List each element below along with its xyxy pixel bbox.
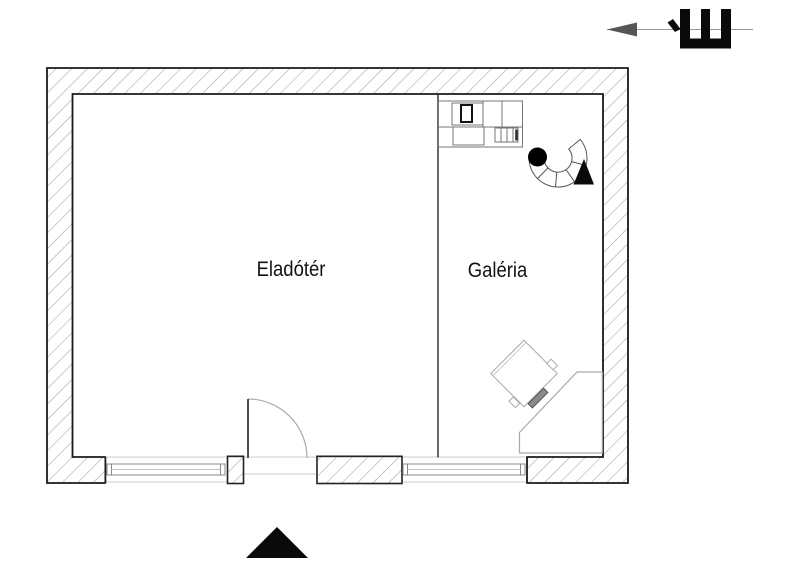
wall-pier-right [317,456,402,483]
north-letter-e-acute [668,9,732,49]
north-indicator [607,9,753,49]
counter-unit [439,101,523,147]
floor-plan-page: Eladótér Galéria [0,0,800,565]
window-right [403,464,525,475]
spiral-stair [528,139,594,187]
entrance-marker-icon [246,527,308,558]
north-arrowhead-icon [607,23,637,37]
door-swing-arc [248,399,307,458]
room-label-galeria: Galéria [468,259,528,283]
room-label-eladoter: Eladótér [257,258,326,282]
window-left [107,464,225,475]
floor-plan-drawing: Eladótér Galéria [0,0,800,565]
entrance-door [248,399,307,458]
wall-pier-left [228,456,244,483]
stair-newel-post [528,148,547,167]
acute-accent [668,19,681,32]
